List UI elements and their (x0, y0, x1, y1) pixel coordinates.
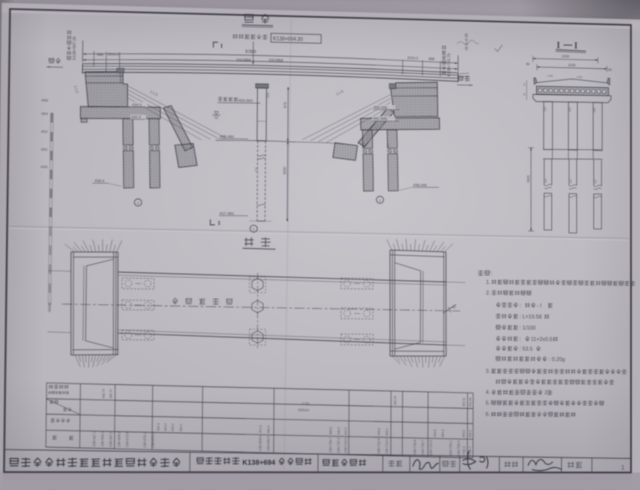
svg-text:5.: 5. (486, 401, 490, 407)
svg-text:150: 150 (568, 107, 572, 112)
svg-text:138+676.1: 138+676.1 (143, 432, 147, 448)
svg-text:K138+720.75: K138+720.75 (446, 53, 451, 77)
svg-text:4.: 4. (486, 390, 491, 396)
svg-text:+730.2: +730.2 (462, 446, 466, 456)
svg-text:138+672.8: 138+672.8 (125, 432, 129, 448)
svg-text:150: 150 (593, 179, 597, 184)
svg-text:138+707.2: 138+707.2 (337, 437, 341, 453)
svg-text:456: 456 (41, 98, 49, 103)
svg-text:420: 420 (386, 143, 390, 148)
svg-text::: : (519, 337, 521, 343)
svg-text:138+725.1: 138+725.1 (449, 440, 453, 456)
svg-text:138+722.3: 138+722.3 (429, 440, 433, 456)
svg-text:50: 50 (608, 68, 612, 72)
svg-text:138+667.2: 138+667.2 (109, 431, 113, 447)
svg-text:2.: 2. (486, 291, 491, 297)
svg-text:888: 888 (97, 53, 103, 57)
svg-text:138+716.0: 138+716.0 (385, 439, 389, 455)
svg-text:1200: 1200 (562, 55, 570, 59)
svg-text:2: 2 (545, 390, 548, 396)
svg-text:2: 2 (379, 198, 382, 203)
svg-text::: : (491, 271, 493, 277)
svg-text:453.962: 453.962 (238, 98, 253, 103)
svg-text:420: 420 (361, 143, 365, 148)
svg-text:I: I (218, 221, 221, 227)
svg-text:454.4: 454.4 (163, 423, 167, 431)
svg-text:20: 20 (522, 83, 526, 86)
svg-text:K138+694.30: K138+694.30 (273, 36, 303, 43)
svg-text:150: 150 (544, 178, 548, 183)
svg-text:449.8: 449.8 (377, 428, 381, 436)
svg-text:K138+694: K138+694 (242, 459, 275, 467)
svg-text:138+704.7: 138+704.7 (329, 437, 333, 453)
svg-text:1:1.5: 1:1.5 (149, 90, 158, 97)
svg-text:0: 0 (137, 200, 140, 205)
svg-text:: L=19.58: : L=19.58 (519, 314, 541, 320)
svg-text:1.: 1. (486, 280, 491, 286)
svg-text:: 0.20g: : 0.20g (549, 357, 565, 363)
svg-text:450.2: 450.2 (267, 425, 271, 433)
svg-text:138+710.9: 138+710.9 (344, 438, 348, 454)
svg-text:879: 879 (283, 102, 287, 108)
svg-text:453.6: 453.6 (433, 429, 437, 437)
svg-text:455.0: 455.0 (462, 430, 466, 438)
svg-text:K138+667.25: K138+667.25 (71, 36, 76, 60)
svg-text:11+2x0.5: 11+2x0.5 (531, 337, 553, 343)
svg-text:138+657.2: 138+657.2 (92, 431, 96, 447)
svg-text:138+713.4: 138+713.4 (377, 438, 381, 454)
svg-text:588: 588 (428, 57, 434, 61)
svg-text:138+720.7: 138+720.7 (421, 440, 425, 456)
svg-text:2X1958: 2X1958 (236, 57, 251, 62)
svg-text:138+696.5: 138+696.5 (266, 436, 270, 452)
svg-text:138+669.2: 138+669.2 (117, 432, 121, 448)
svg-text:2019.2: 2019.2 (108, 53, 119, 57)
svg-text:451.346: 451.346 (373, 117, 387, 121)
svg-text:448.6: 448.6 (329, 427, 333, 435)
svg-text:450: 450 (41, 147, 49, 152)
svg-text:452: 452 (41, 129, 49, 134)
svg-text:1:1.5: 1:1.5 (335, 89, 344, 96)
svg-text:1:1.5: 1:1.5 (73, 85, 79, 93)
svg-text:450.1: 450.1 (385, 428, 389, 436)
svg-text:150: 150 (569, 179, 573, 184)
svg-text:432.9: 432.9 (131, 115, 141, 119)
svg-text:460.74: 460.74 (102, 389, 106, 399)
svg-text:40: 40 (452, 305, 456, 309)
svg-text:1: 1 (621, 466, 625, 472)
svg-text:454: 454 (41, 111, 49, 116)
svg-text:454.3: 454.3 (441, 429, 445, 437)
svg-text:- I: - I (537, 303, 542, 309)
svg-text:434.9: 434.9 (132, 103, 142, 107)
svg-text:3300: 3300 (526, 175, 530, 182)
svg-text:436.4: 436.4 (95, 179, 106, 183)
svg-text:i=25: i=25 (547, 74, 553, 78)
svg-text:448: 448 (40, 164, 48, 169)
svg-text::: : (519, 303, 521, 309)
svg-text:456.2: 456.2 (468, 430, 472, 438)
svg-text:3300: 3300 (283, 167, 287, 175)
svg-text:460.70: 460.70 (109, 389, 113, 399)
svg-text:I: I (574, 41, 578, 51)
svg-text:460.28: 460.28 (468, 397, 472, 407)
svg-text:417.481: 417.481 (220, 211, 235, 216)
svg-text:: 53.5: : 53.5 (519, 347, 532, 353)
svg-text:453.1: 453.1 (179, 423, 183, 431)
svg-text:451.0: 451.0 (258, 425, 262, 433)
svg-text:1100: 1100 (568, 63, 575, 67)
svg-text:I: I (557, 40, 561, 50)
svg-text:454.3: 454.3 (171, 423, 175, 431)
svg-text:452.3: 452.3 (156, 423, 160, 431)
svg-text:460.34: 460.34 (393, 396, 397, 406)
svg-text:85: 85 (522, 92, 526, 95)
svg-text:138+718.6: 138+718.6 (413, 439, 417, 455)
svg-text:150: 150 (254, 167, 258, 172)
svg-text:3500cm: 3500cm (298, 408, 310, 412)
svg-text:460.31: 460.31 (462, 397, 466, 407)
svg-text:0.3%: 0.3% (302, 402, 309, 406)
svg-text:2019.2: 2019.2 (407, 56, 418, 60)
svg-text:150: 150 (593, 107, 597, 112)
svg-text:138+662.1: 138+662.1 (100, 431, 104, 447)
svg-text:138+694.0: 138+694.0 (258, 435, 262, 451)
svg-text:138+679.3: 138+679.3 (151, 432, 155, 448)
svg-text:6.: 6. (486, 412, 490, 418)
svg-text:436.481: 436.481 (220, 134, 235, 139)
svg-text:I: I (220, 44, 223, 50)
svg-text:150: 150 (266, 92, 270, 97)
svg-text:446.4: 446.4 (337, 427, 341, 435)
svg-text:50: 50 (526, 62, 530, 66)
svg-text:138+728.4: 138+728.4 (457, 441, 461, 457)
svg-text:: 1/100: : 1/100 (519, 326, 535, 332)
svg-text:5350: 5350 (245, 49, 256, 55)
svg-text:455.346: 455.346 (373, 105, 387, 109)
svg-text:436.046: 436.046 (413, 183, 427, 187)
svg-text:2X1958: 2X1958 (269, 58, 284, 63)
svg-text:i=25: i=25 (577, 75, 583, 79)
svg-text:447.2: 447.2 (344, 427, 348, 435)
svg-text:3.: 3. (486, 369, 490, 375)
svg-text:150: 150 (543, 106, 547, 111)
